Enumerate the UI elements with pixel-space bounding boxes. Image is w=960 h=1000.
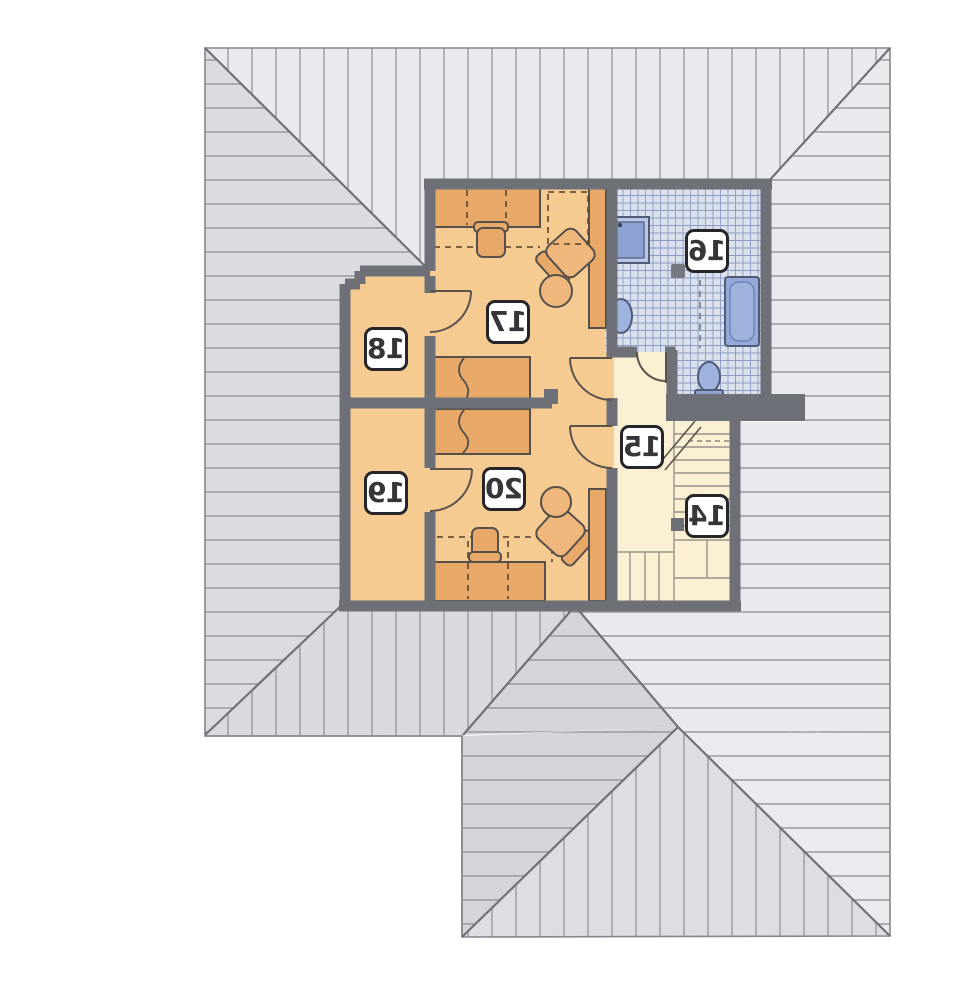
stool — [477, 228, 505, 257]
stool-back — [469, 552, 501, 562]
room-number: 17 — [490, 308, 527, 336]
room-number: 16 — [689, 237, 726, 265]
round-table — [540, 275, 572, 307]
room-label-17: 17 — [486, 300, 530, 344]
wardrobe — [589, 489, 606, 601]
bed — [431, 409, 530, 454]
vent-box — [671, 264, 685, 278]
room-label-18: 18 — [364, 327, 408, 371]
wall-post — [544, 389, 558, 404]
room-number: 20 — [486, 475, 523, 503]
room-label-14: 14 — [685, 494, 729, 538]
room-number: 14 — [689, 502, 726, 530]
round-table — [541, 487, 571, 517]
room-number: 18 — [368, 335, 405, 363]
room-label-15: 15 — [620, 425, 664, 469]
floor-plan-page: 16 17 18 19 20 15 14 — [0, 0, 960, 1000]
room-label-16: 16 — [685, 229, 729, 273]
wall-stub — [666, 394, 805, 421]
stair-post — [671, 518, 684, 531]
floor-plan-drawing — [0, 0, 960, 1000]
room-number: 15 — [624, 433, 661, 461]
room-number: 19 — [368, 479, 405, 507]
desk — [433, 562, 545, 601]
room-label-19: 19 — [364, 471, 408, 515]
room-label-20: 20 — [482, 467, 526, 511]
toilet-bowl — [698, 362, 720, 392]
bed — [431, 357, 530, 404]
